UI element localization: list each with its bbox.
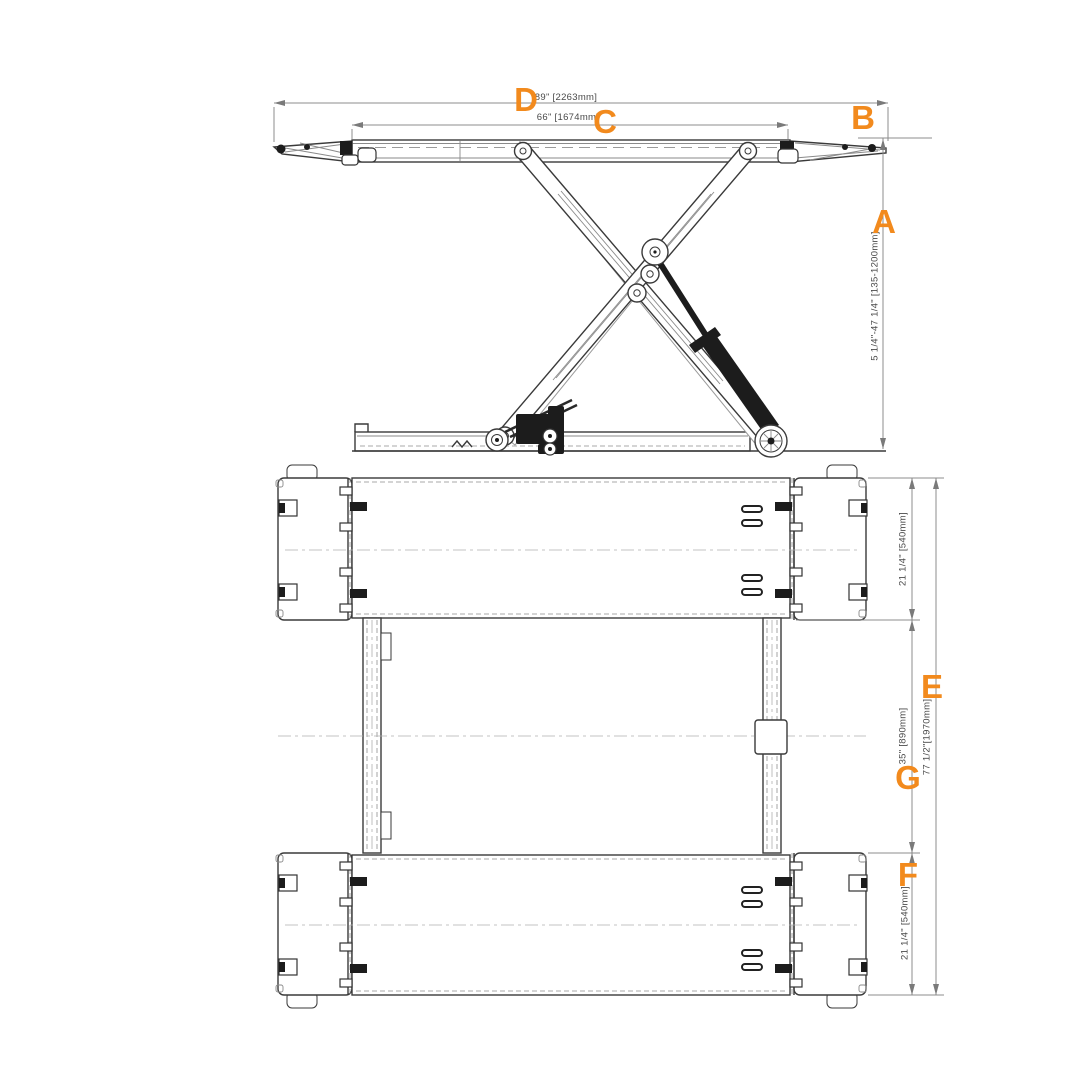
dim-f-letter: F	[898, 856, 918, 893]
dimension-b: B	[851, 99, 875, 136]
technical-drawing-page: 89" [2263mm] D 66" [1674mm] C B	[0, 0, 1082, 1080]
plan-view: 21 1/4" [540mm] 35" [890mm] G 21 1/4" [5…	[276, 465, 944, 1008]
dim-a-value: 5 1/4"-47 1/4" [135-1200mm]	[870, 231, 881, 360]
dimension-top-platform: 21 1/4" [540mm]	[898, 478, 916, 620]
dim-g-value: 35" [890mm]	[898, 708, 909, 765]
dim-g-letter: G	[895, 759, 921, 796]
dim-a-letter: A	[872, 203, 896, 240]
side-view: 89" [2263mm] D 66" [1674mm] C B	[274, 81, 932, 457]
dimension-a: 5 1/4"-47 1/4" [135-1200mm] A	[858, 138, 932, 449]
top-platform	[276, 465, 867, 620]
dim-c-letter: C	[593, 103, 617, 140]
right-ramp	[778, 141, 886, 163]
dimension-f: 21 1/4" [540mm] F	[898, 853, 918, 995]
base-frame	[352, 424, 886, 451]
dim-f-value: 21 1/4" [540mm]	[900, 886, 911, 960]
dimension-e: 77 1/2"[1970mm] E	[921, 478, 943, 995]
left-rail-notch	[381, 633, 391, 660]
dim-e-letter: E	[921, 668, 943, 705]
dim-b-letter: B	[851, 99, 875, 136]
hydraulic-cylinder	[658, 260, 779, 435]
dimension-c: 66" [1674mm] C	[352, 103, 788, 140]
bottom-platform	[276, 853, 867, 1008]
scissor-lift-drawing: 89" [2263mm] D 66" [1674mm] C B	[0, 0, 1082, 1080]
left-rail-notch	[381, 812, 391, 839]
platform-deck	[352, 140, 790, 162]
rail-lock-block	[755, 720, 787, 754]
dim-d-value: 89" [2263mm]	[535, 92, 597, 103]
base-roller	[755, 425, 787, 457]
dim-c-value: 66" [1674mm]	[537, 112, 599, 123]
connecting-rails	[278, 618, 866, 853]
top-deck	[352, 478, 790, 618]
dim-top-platform-value: 21 1/4" [540mm]	[898, 512, 909, 586]
dim-e-value: 77 1/2"[1970mm]	[922, 699, 933, 776]
dimension-g: 35" [890mm] G	[895, 620, 921, 853]
dim-d-letter: D	[514, 81, 538, 118]
